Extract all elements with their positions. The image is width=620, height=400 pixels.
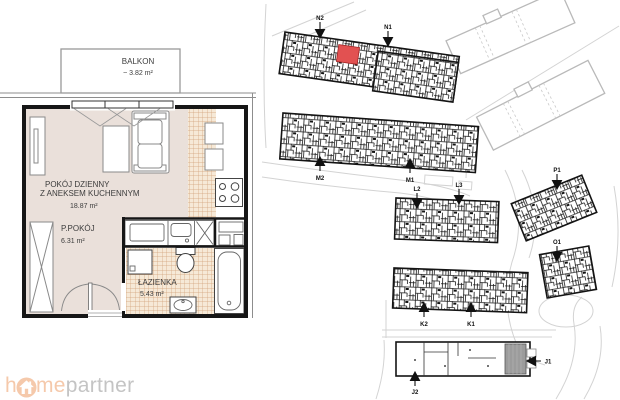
- building-p: [511, 175, 596, 241]
- building-j: [396, 342, 536, 376]
- site-plan: N2 N1 M2 M1 L2 L3: [258, 0, 620, 400]
- stove: [216, 179, 243, 207]
- site-marker-label: L3: [455, 183, 463, 189]
- logo-text-me: me: [36, 374, 66, 398]
- site-marker-label: K1: [467, 322, 475, 328]
- floor-plan: BALKON ~ 3.82 m²: [0, 0, 258, 400]
- living-room-label-2: Z ANEKSEM KUCHENNYM: [40, 189, 140, 198]
- kitchen-counter: [125, 221, 214, 246]
- balcony-area: ~ 3.82 m²: [123, 70, 153, 77]
- bathtub: [215, 249, 245, 314]
- site-marker-n2: N2: [316, 16, 325, 38]
- site-marker-label: L2: [413, 187, 421, 193]
- coffee-table: [103, 126, 129, 172]
- bathroom-label: ŁAZIENKA: [138, 278, 177, 287]
- real-estate-listing-image: BALKON ~ 3.82 m²: [0, 0, 620, 400]
- hallway-label: P.POKÓJ: [61, 224, 95, 233]
- site-marker-label: M2: [316, 176, 325, 182]
- hallway-area: 6.31 m²: [61, 238, 85, 245]
- sofa: [132, 111, 169, 173]
- logo-text-partner: partner: [66, 374, 135, 398]
- living-room-label-1: POKÓJ DZIENNY: [45, 180, 110, 189]
- entrance-door-leaf: [89, 283, 93, 311]
- balcony: BALKON ~ 3.82 m²: [61, 49, 180, 93]
- home-icon: [16, 377, 37, 398]
- building-l: [395, 198, 499, 243]
- kitchen-sink: [171, 224, 191, 237]
- site-marker-label: J1: [545, 360, 552, 366]
- building-m: [280, 113, 479, 173]
- brand-logo: h me partner: [5, 374, 134, 398]
- bathroom-area: 5.43 m²: [140, 291, 164, 298]
- toilet: [176, 248, 195, 273]
- building-k: [393, 268, 528, 313]
- site-marker-label: N1: [384, 25, 392, 31]
- site-marker-label: J2: [412, 390, 419, 396]
- living-room-area: 18.87 m²: [70, 203, 98, 210]
- site-marker-n1: N1: [384, 25, 393, 46]
- bathroom-sink: [170, 297, 196, 313]
- site-marker-label: K2: [420, 322, 428, 328]
- building-outline-2: [473, 53, 605, 150]
- highlighted-unit: [336, 45, 359, 65]
- building-outline-1: [443, 0, 575, 74]
- building-o: [540, 246, 597, 298]
- wardrobe: [30, 222, 53, 312]
- site-marker-label: P1: [553, 168, 561, 174]
- site-marker-label: N2: [316, 16, 324, 22]
- balcony-label: BALKON: [122, 57, 155, 66]
- washing-machine: [128, 250, 152, 274]
- tv-shelf: [30, 117, 45, 175]
- site-marker-label: M1: [406, 178, 415, 184]
- site-marker-label: O1: [553, 240, 562, 246]
- building-n: [279, 32, 460, 102]
